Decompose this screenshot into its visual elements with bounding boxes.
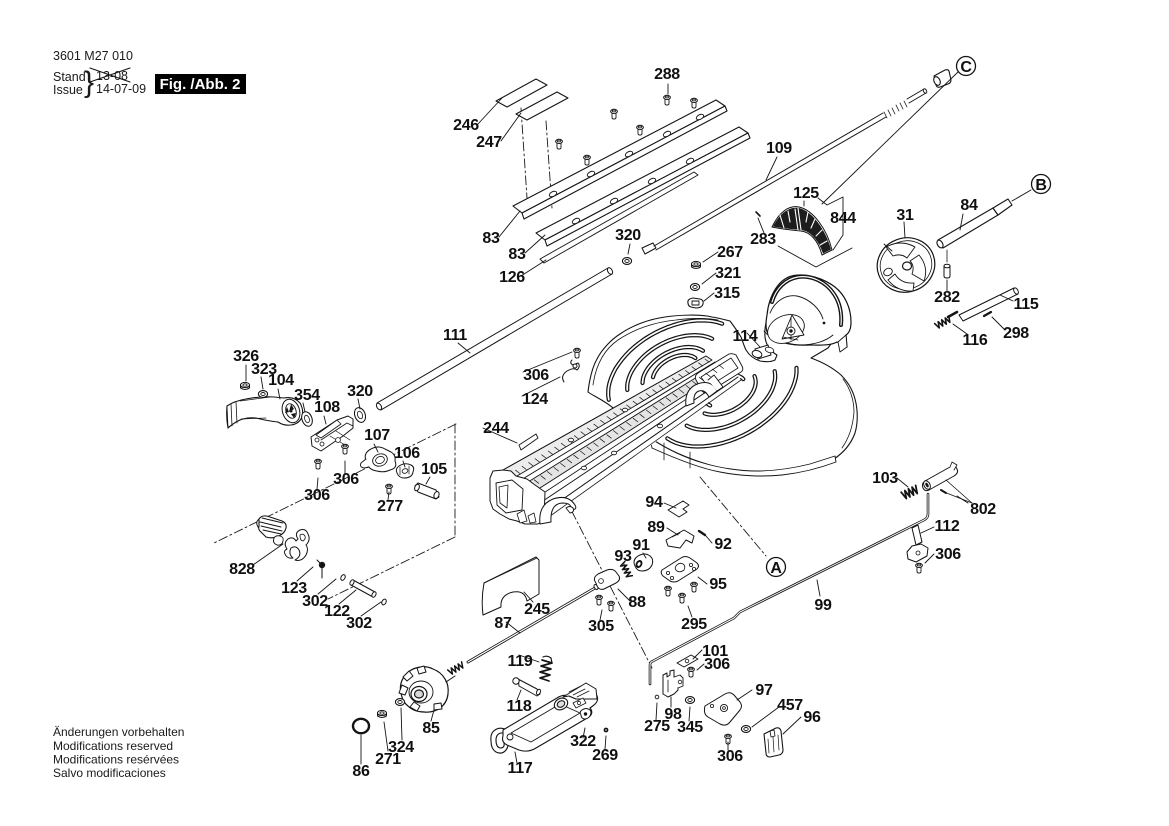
svg-text:117: 117	[508, 760, 533, 777]
svg-text:93: 93	[614, 548, 632, 565]
svg-text:84: 84	[960, 197, 978, 214]
svg-text:306: 306	[704, 656, 730, 673]
svg-text:103: 103	[872, 470, 898, 487]
svg-text:92: 92	[714, 536, 732, 553]
svg-text:277: 277	[377, 498, 403, 515]
svg-text:305: 305	[588, 618, 614, 635]
svg-text:246: 246	[453, 117, 479, 134]
svg-text:306: 306	[304, 487, 330, 504]
svg-text:95: 95	[709, 576, 727, 593]
svg-text:94: 94	[645, 494, 663, 511]
svg-text:114: 114	[733, 328, 758, 345]
svg-text:298: 298	[1003, 325, 1029, 342]
svg-text:275: 275	[644, 718, 670, 735]
svg-text:828: 828	[229, 561, 255, 578]
svg-text:844: 844	[830, 210, 856, 227]
svg-text:306: 306	[333, 471, 359, 488]
svg-text:104: 104	[268, 372, 294, 389]
svg-text:31: 31	[896, 207, 914, 224]
svg-text:315: 315	[714, 285, 740, 302]
svg-text:126: 126	[499, 269, 525, 286]
svg-text:91: 91	[632, 537, 650, 554]
svg-text:124: 124	[522, 391, 548, 408]
svg-text:}: }	[84, 66, 94, 99]
svg-text:112: 112	[935, 518, 960, 535]
svg-text:105: 105	[421, 461, 447, 478]
svg-text:267: 267	[717, 244, 743, 261]
svg-text:Änderungen vorbehalten: Änderungen vorbehalten	[53, 725, 184, 739]
svg-text:245: 245	[524, 601, 550, 618]
svg-text:244: 244	[483, 420, 509, 437]
svg-text:111: 111	[443, 327, 467, 344]
svg-text:Issue: Issue	[53, 83, 83, 97]
svg-text:247: 247	[476, 134, 502, 151]
svg-text:320: 320	[615, 227, 641, 244]
svg-text:320: 320	[347, 383, 373, 400]
svg-text:86: 86	[352, 763, 370, 780]
svg-text:A: A	[770, 560, 782, 577]
svg-text:83: 83	[508, 246, 526, 263]
svg-text:89: 89	[647, 519, 665, 536]
svg-text:85: 85	[422, 720, 440, 737]
svg-text:14-07-09: 14-07-09	[96, 82, 146, 96]
svg-text:108: 108	[314, 399, 340, 416]
svg-text:288: 288	[654, 66, 680, 83]
svg-text:306: 306	[935, 546, 961, 563]
svg-text:118: 118	[507, 698, 532, 715]
svg-text:Stand: Stand	[53, 70, 86, 84]
svg-text:107: 107	[364, 427, 390, 444]
svg-text:295: 295	[681, 616, 707, 633]
svg-text:321: 321	[715, 265, 741, 282]
svg-text:109: 109	[766, 140, 792, 157]
svg-text:99: 99	[814, 597, 832, 614]
svg-text:269: 269	[592, 747, 618, 764]
svg-text:Modifications reserved: Modifications reserved	[53, 739, 173, 753]
svg-text:83: 83	[482, 230, 500, 247]
svg-text:C: C	[960, 59, 972, 76]
svg-text:282: 282	[934, 289, 960, 306]
svg-text:116: 116	[963, 332, 988, 349]
svg-text:Salvo modificaciones: Salvo modificaciones	[53, 766, 166, 780]
svg-text:306: 306	[523, 367, 549, 384]
svg-text:271: 271	[375, 751, 401, 768]
svg-text:457: 457	[777, 697, 803, 714]
svg-text:3601 M27 010: 3601 M27 010	[53, 49, 133, 63]
svg-text:97: 97	[755, 682, 773, 699]
svg-text:106: 106	[394, 445, 420, 462]
svg-text:345: 345	[677, 719, 703, 736]
svg-text:306: 306	[717, 748, 743, 765]
svg-text:802: 802	[970, 501, 996, 518]
svg-text:B: B	[1035, 177, 1046, 194]
svg-text:96: 96	[803, 709, 821, 726]
svg-text:88: 88	[628, 594, 646, 611]
svg-text:125: 125	[793, 185, 819, 202]
svg-text:87: 87	[494, 615, 512, 632]
svg-text:283: 283	[750, 231, 776, 248]
svg-text:119: 119	[508, 653, 533, 670]
svg-text:Modifications resérvées: Modifications resérvées	[53, 753, 179, 767]
svg-text:115: 115	[1014, 296, 1039, 313]
svg-text:302: 302	[346, 615, 372, 632]
svg-text:Fig. /Abb. 2: Fig. /Abb. 2	[160, 76, 241, 93]
